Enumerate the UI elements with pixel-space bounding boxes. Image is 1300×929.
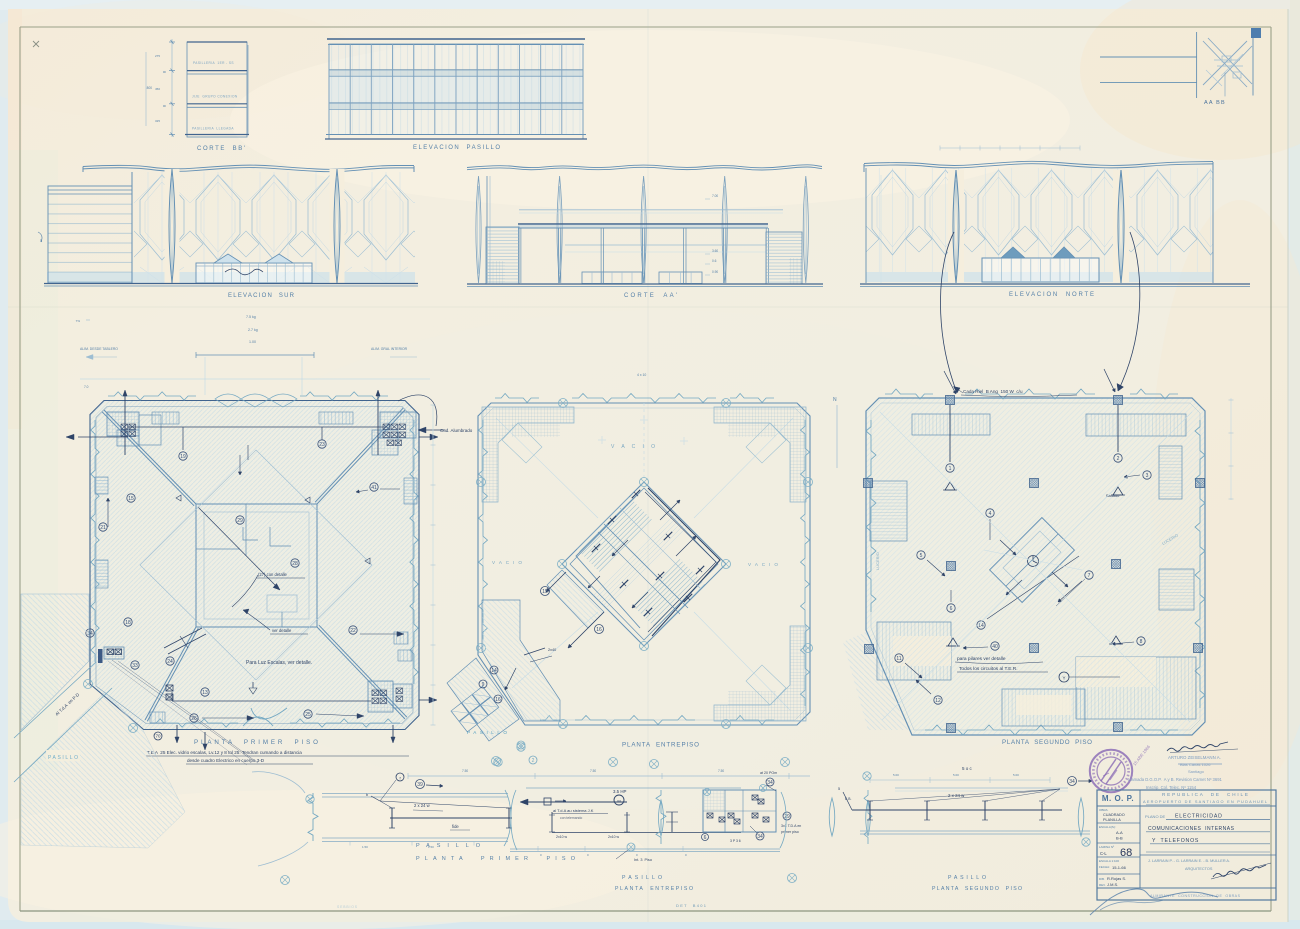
svg-text:6: 6 [950,606,953,612]
svg-text:2 x 24 w: 2 x 24 w [414,803,431,808]
svg-text:34: 34 [1069,779,1075,785]
svg-text:3: 3 [1146,473,1149,479]
svg-text:E.B.: E.B. [845,797,851,801]
svg-text:ELEVACION PASILLO: ELEVACION PASILLO [413,145,500,151]
svg-text:REV.: REV. [1099,883,1106,887]
svg-text:PLANO DE: PLANO DE [1145,814,1166,819]
svg-text:Inscrip. Col. Telec. Nº 1154: Inscrip. Col. Telec. Nº 1154 [1146,785,1197,790]
svg-text:7%: 7% [76,319,81,323]
svg-text:22: 22 [350,628,356,634]
svg-text:2: 2 [532,758,535,764]
svg-text:7.5 kg: 7.5 kg [246,315,256,319]
svg-text:15-1-66: 15-1-66 [1112,865,1127,870]
svg-text:ELEVACION SUR: ELEVACION SUR [228,293,295,299]
svg-text:fide: fide [452,824,459,829]
svg-text:7.0: 7.0 [84,385,89,389]
svg-text:15: 15 [542,589,548,595]
svg-text:LUCERIO: LUCERIO [875,552,880,570]
svg-text:2 x 24 w: 2 x 24 w [948,793,965,798]
svg-text:39: 39 [417,782,423,788]
svg-text:PLANTA SEGUNDO PISO: PLANTA SEGUNDO PISO [1002,739,1092,746]
svg-text:A-A: A-A [1116,830,1123,835]
svg-text:1.50: 1.50 [362,845,368,849]
svg-text:0.6: 0.6 [712,259,717,263]
svg-text:21: 21 [100,525,106,531]
svg-text:7.00: 7.00 [712,194,718,198]
svg-text:5 o c: 5 o c [962,766,973,771]
svg-text:1: 1 [949,466,952,472]
svg-text:DET B401: DET B401 [676,903,707,908]
svg-text:Para Luz Escalas, ver detalle.: Para Luz Escalas, ver detalle. [246,660,312,666]
svg-text:Llamada D.G.O.P. A y B. Revis: Llamada D.G.O.P. A y B. Revision Carnet … [1128,777,1223,782]
svg-text:desde cuadro Electrico en cuer: desde cuadro Electrico en cuerpo 3-D [187,758,265,763]
svg-text:ARQUITECTOS: ARQUITECTOS [1185,867,1213,871]
svg-text:3x1 T.D.A en: 3x1 T.D.A en [781,824,801,828]
svg-text:FECHA:: FECHA: [1099,865,1110,869]
svg-text:Y: Y [1062,676,1065,681]
svg-text:para pilares ver detalle: para pilares ver detalle [957,656,1006,662]
svg-text:4 x 10: 4 x 10 [637,373,646,377]
svg-text:15: 15 [128,496,134,502]
svg-text:V A C I O: V A C I O [748,562,778,567]
svg-text:JIJE GRUPO CONEXION: JIJE GRUPO CONEXION [192,95,238,99]
svg-text:J.M.S.: J.M.S. [1107,882,1118,887]
svg-text:ELECTRICIDAD: ELECTRICIDAD [1175,814,1223,820]
svg-text:CUADRADO: CUADRADO [1103,813,1125,817]
svg-text:ALMIRANTE CONSTRUCCION DE O: ALMIRANTE CONSTRUCCION DE OBRAS [1150,894,1241,898]
svg-text:SEBBIOS: SEBBIOS [337,905,358,909]
svg-text:ESCALA(S):: ESCALA(S): [1099,825,1116,829]
svg-text:Int. 3 Piso: Int. 3 Piso [634,858,652,862]
svg-text:ARTURO ZEISELMANN A.: ARTURO ZEISELMANN A. [1168,755,1221,760]
svg-text:11: 11 [896,656,901,662]
svg-text:Blas Canas 1026: Blas Canas 1026 [1180,762,1211,767]
svg-text:325: 325 [155,119,160,123]
svg-text:28: 28 [292,561,298,567]
svg-text:Cada Riel B Ang 150 W c/u: Cada Riel B Ang 150 W c/u [963,389,1023,394]
svg-text:450: 450 [155,87,160,91]
svg-text:33: 33 [132,663,138,669]
svg-text:1.00: 1.00 [249,340,256,344]
svg-text:C-L: C-L [1100,851,1107,856]
svg-text:T.E.A 25 Elec. vidrio escalas: T.E.A 25 Elec. vidrio escalas, Lv.12 y 8… [147,750,302,755]
svg-text:2x10 w: 2x10 w [608,835,620,839]
svg-text:40: 40 [992,644,998,650]
svg-text:7.50: 7.50 [590,769,596,773]
svg-text:4: 4 [989,511,992,517]
svg-text:con telemando: con telemando [560,816,582,820]
svg-text:7: 7 [1088,573,1091,579]
svg-text:7.50: 7.50 [462,769,468,773]
svg-text:14: 14 [491,668,497,674]
svg-text:ESCALA 1:100: ESCALA 1:100 [1099,859,1119,863]
svg-text:PLANTA ENTREPISO: PLANTA ENTREPISO [622,742,699,749]
svg-text:5.00: 5.00 [893,773,899,777]
svg-text:M: M [617,799,620,804]
svg-text:Y TELEFONOS: Y TELEFONOS [1152,838,1199,844]
svg-text:COMUNICACIONES INTERNAS: COMUNICACIONES INTERNAS [1148,826,1235,832]
svg-text:ver detalle: ver detalle [272,628,292,633]
svg-text:V A C I O: V A C I O [492,560,522,565]
svg-text:CORTE BB': CORTE BB' [197,146,245,152]
svg-text:2x10 w: 2x10 w [556,835,568,839]
svg-text:16: 16 [495,697,501,703]
svg-text:M. O. P.: M. O. P. [1102,794,1134,803]
svg-text:3 P 3 6: 3 P 3 6 [730,839,741,843]
svg-text:68: 68 [1120,847,1132,859]
svg-text:16: 16 [596,627,602,633]
svg-text:PLANTA SEGUNDO PISO: PLANTA SEGUNDO PISO [932,886,1022,892]
svg-text:Santiago: Santiago [1188,769,1205,774]
svg-text:al T.d.A au sistema J.K: al T.d.A au sistema J.K [553,808,594,813]
svg-text:0.90: 0.90 [712,270,718,274]
svg-text:19: 19 [180,454,186,460]
svg-text:3.5 HP: 3.5 HP [613,789,626,794]
svg-text:8: 8 [1140,639,1143,645]
svg-text:J. LARRAIN P. - G. LARRAIN E.: J. LARRAIN P. - G. LARRAIN E. - B. MULLE… [1148,859,1230,863]
svg-text:PLANILLA: PLANILLA [1103,818,1121,822]
svg-text:90: 90 [163,104,167,108]
svg-text:CORTE AA': CORTE AA' [624,293,677,299]
svg-text:LAMINA Nº: LAMINA Nº [1099,845,1115,849]
svg-text:REPUBLICA DE CHILE: REPUBLICA DE CHILE [1162,792,1248,797]
svg-text:PASILLERIA LLEGADA: PASILLERIA LLEGADA [192,127,234,131]
svg-text:5.00: 5.00 [953,773,959,777]
svg-text:PASILLERIA 1ER - SS: PASILLERIA 1ER - SS [193,61,234,65]
svg-text:13: 13 [202,690,208,696]
svg-text:23: 23 [319,442,325,448]
svg-text:12: 12 [935,698,941,704]
svg-text:34: 34 [757,834,763,840]
svg-text:275: 275 [155,54,160,58]
svg-text:18: 18 [125,620,131,626]
svg-text:25: 25 [305,712,311,718]
svg-text:ALIM. GRAL INTERIOR: ALIM. GRAL INTERIOR [371,347,408,351]
svg-text:N: N [833,397,837,403]
svg-text:70: 70 [155,734,161,739]
svg-text:2.7 kg: 2.7 kg [248,328,258,332]
svg-text:2x40: 2x40 [548,648,556,652]
svg-text:29: 29 [784,814,790,820]
svg-text:5: 5 [920,553,923,559]
svg-text:OBRA:: OBRA: [1099,808,1109,812]
svg-text:R.Rojas S.: R.Rojas S. [1107,876,1126,881]
svg-text:Todos los circuitos al T.E.R.: Todos los circuitos al T.E.R. [959,666,1018,672]
svg-text:5: 5 [838,787,840,791]
svg-text:5.00: 5.00 [1013,773,1019,777]
svg-text:6: 6 [704,835,707,841]
svg-text:DIB.: DIB. [1099,877,1105,881]
svg-text:3.60: 3.60 [712,249,718,253]
svg-text:29: 29 [237,518,243,524]
svg-text:800: 800 [147,86,153,90]
svg-text:(27) con detalle: (27) con detalle [258,572,288,577]
svg-text:9: 9 [482,682,485,688]
svg-text:AA BB: AA BB [1204,100,1226,106]
svg-text:7.50: 7.50 [718,769,724,773]
svg-text:Cud. Alumbrado: Cud. Alumbrado [440,428,473,433]
svg-text:at 20 POm: at 20 POm [760,771,777,775]
svg-text:2: 2 [1117,456,1120,462]
svg-text:PASILLO: PASILLO [48,755,78,761]
svg-text:ALIM. DESDE TABLERO: ALIM. DESDE TABLERO [80,347,118,351]
svg-text:90: 90 [163,70,167,74]
svg-text:24: 24 [167,659,173,665]
svg-text:B-B: B-B [1116,836,1123,841]
svg-text:34: 34 [767,780,773,786]
svg-text:primer piso: primer piso [781,830,799,834]
svg-text:41: 41 [371,485,377,491]
